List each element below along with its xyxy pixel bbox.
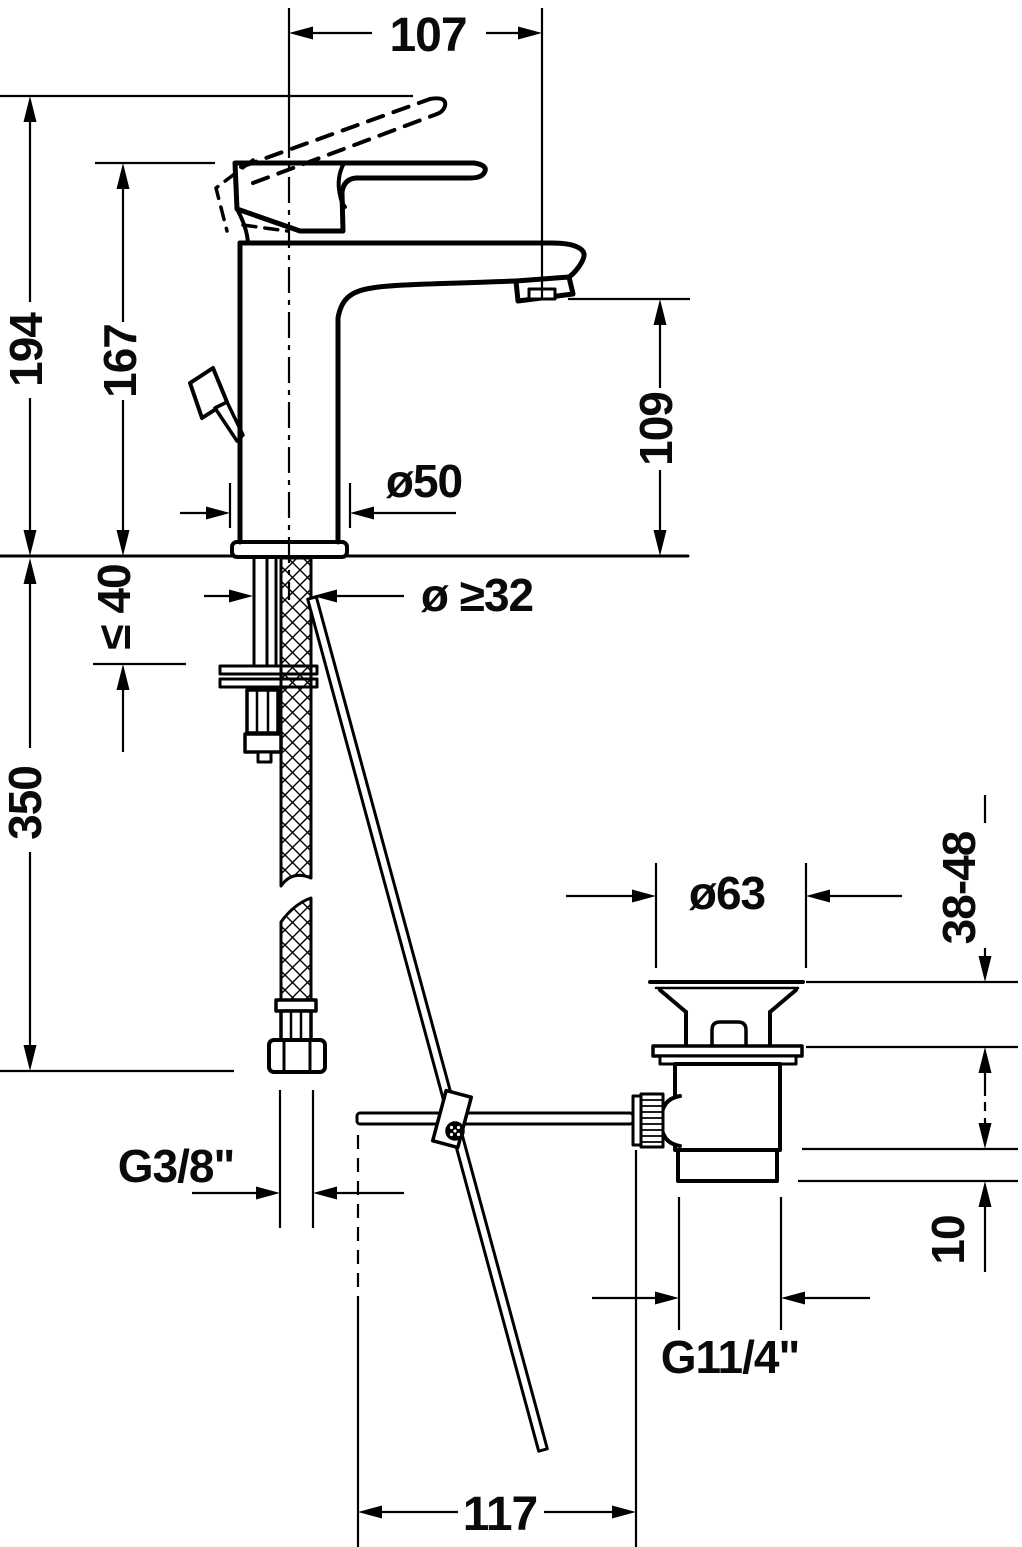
supply-hose-lower bbox=[281, 898, 311, 1000]
arrow-mounting-thickness bbox=[117, 664, 130, 690]
mounting-nut-base bbox=[245, 734, 281, 752]
dim-label-spout-reach: 107 bbox=[389, 9, 466, 62]
basin-mixer-dimension-drawing: 107 194 167 109 ø50 ø ≥32 ≤ 40 350 G3/8"… bbox=[0, 0, 1022, 1547]
popup-waste-outline bbox=[633, 982, 803, 1181]
mounting-stud bbox=[254, 558, 276, 666]
dim-label-supply-thread: G3/8" bbox=[118, 1140, 235, 1192]
popup-pull-rod bbox=[308, 597, 548, 1451]
arrows-waste-thread bbox=[655, 1292, 805, 1305]
hose-hex-nut bbox=[269, 1040, 325, 1072]
hose-crimp bbox=[281, 1011, 311, 1040]
dim-label-waste-seal: 10 bbox=[922, 1215, 974, 1264]
dim-label-body-height: 167 bbox=[94, 324, 146, 398]
dim-label-base-diameter: ø50 bbox=[386, 455, 462, 507]
dim-label-rod-length: 117 bbox=[463, 1488, 537, 1541]
faucet-top-and-spout-end bbox=[240, 243, 584, 277]
technical-drawing-page: 107 194 167 109 ø50 ø ≥32 ≤ 40 350 G3/8"… bbox=[0, 0, 1022, 1547]
waste-lever-rod bbox=[357, 1113, 633, 1124]
mounting-nut-tab bbox=[258, 752, 271, 762]
ext-supply-thread bbox=[280, 1090, 313, 1228]
waste-body bbox=[675, 1064, 780, 1150]
supply-hose-upper bbox=[281, 558, 311, 886]
waste-rod-end-plate bbox=[633, 1096, 641, 1145]
dim-label-mounting-thickness: ≤ 40 bbox=[88, 564, 140, 649]
waste-knurled-nut bbox=[641, 1094, 663, 1147]
dim-label-spout-height: 109 bbox=[630, 392, 682, 466]
waste-neck bbox=[686, 1012, 770, 1046]
dimension-labels: 107 194 167 109 ø50 ø ≥32 ≤ 40 350 G3/8"… bbox=[0, 9, 985, 1541]
dim-label-hose-length: 350 bbox=[0, 766, 51, 840]
dim-label-waste-thread: G11/4" bbox=[661, 1331, 800, 1383]
waste-strainer-slot bbox=[712, 1022, 746, 1047]
arrows-supply-thread bbox=[256, 1187, 337, 1200]
waste-flange-taper bbox=[660, 990, 796, 1012]
ext-waste-thread bbox=[679, 1197, 781, 1330]
dim-label-total-height: 194 bbox=[0, 312, 52, 387]
dim-label-hole-diameter: ø ≥32 bbox=[421, 569, 533, 621]
lever-cap-and-handle bbox=[235, 163, 485, 231]
dim-label-clamping-range: 38-48 bbox=[933, 831, 985, 944]
faucet-outline bbox=[0, 98, 803, 1451]
mounting-nut bbox=[247, 690, 278, 733]
arrow-waste-seal bbox=[979, 1181, 992, 1207]
dim-label-waste-flange-diameter: ø63 bbox=[689, 867, 765, 919]
waste-body-lower bbox=[678, 1150, 777, 1181]
lever-raised-tip bbox=[430, 98, 445, 114]
